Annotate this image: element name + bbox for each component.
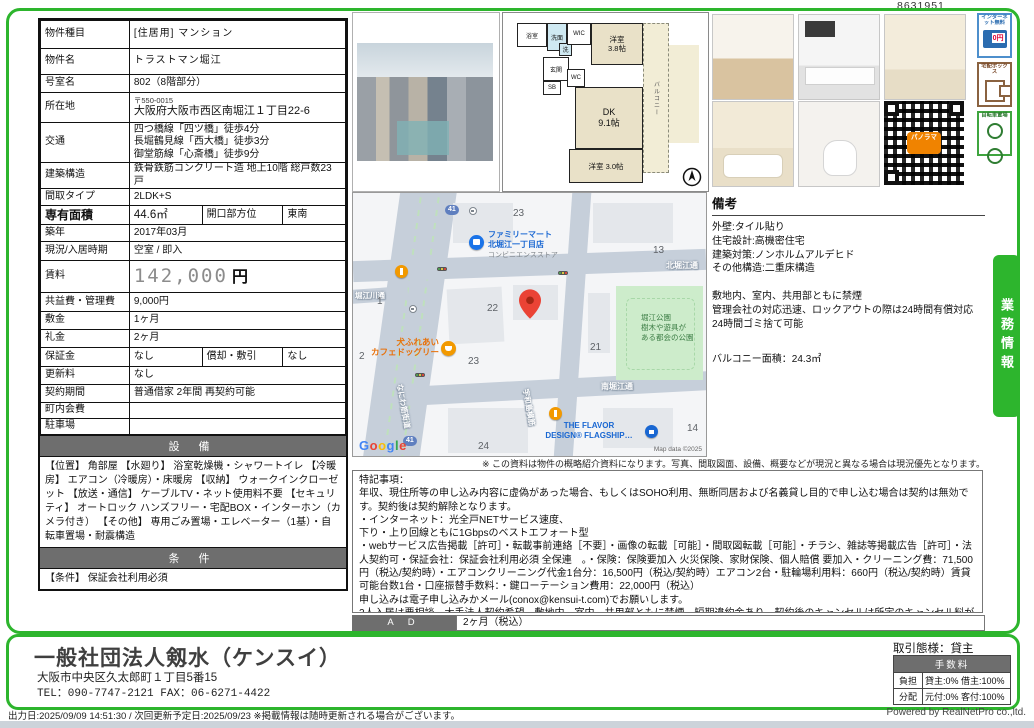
block-number: 13 [653, 245, 664, 256]
field-value [129, 419, 345, 435]
bicycle-parking-badge: 自転車置場 [977, 111, 1012, 156]
block-number: 14 [687, 423, 698, 434]
qr-finder [949, 101, 964, 116]
field-value: 2017年03月 [129, 225, 345, 242]
road-label-south: 南堀江通 [601, 381, 633, 392]
conditions-text: 【条件】 保証会社利用必須 [40, 568, 346, 589]
property-detail-panel: 物件種目[住居用] マンション 物件名トラストマン堀江 号室名802（8階部分）… [38, 18, 348, 591]
building-glass-facade [397, 121, 449, 155]
field-value: なし [283, 348, 346, 367]
field-label: 号室名 [41, 75, 130, 93]
rent-amount: 142,000 [134, 265, 228, 287]
location-map: 堀江公園 樹木や遊具が ある都会の公園 北堀江通 南堀江通 堀江川通 なにわ筋街… [352, 192, 707, 457]
building-exterior-photo [352, 12, 500, 192]
field-value: 〒550-0015大阪府大阪市西区南堀江１丁目22-6 [129, 93, 345, 123]
business-info-tab: 業務情報 [993, 255, 1020, 417]
field-label: 物件名 [41, 49, 130, 75]
toilet [823, 140, 857, 176]
traffic-light-icon [558, 271, 568, 275]
bus-stop-icon [469, 207, 477, 215]
map-pin-icon [519, 289, 541, 319]
bus-stop-icon [409, 305, 417, 313]
equipment-header: 設 備 [40, 435, 346, 456]
room-label: 玄関 [550, 65, 562, 74]
internet-free-badge: インターネット無料 0円 [977, 13, 1012, 58]
field-value: 2LDK+S [129, 189, 345, 206]
field-label: 契約期間 [41, 385, 130, 403]
delivery-box-icon [985, 80, 1005, 102]
floorplan-sb: SB [543, 81, 561, 95]
traffic-light-icon [437, 267, 447, 271]
room-label: WIC [573, 31, 585, 37]
photo-toilet [798, 101, 880, 187]
field-value: 普通借家 2年間 再契約可能 [129, 385, 345, 403]
field-value: 四つ橋線「四ツ橋」徒歩4分 長堀鶴見線「西大橋」徒歩3分 御堂筋線「心斎橋」徒歩… [129, 123, 345, 163]
field-value: 鉄骨鉄筋コンクリート造 地上10階 総戸数23戸 [129, 163, 345, 189]
cafe-label: 犬ふれあい カフェドッグリー [361, 337, 439, 357]
balcony-area: バルコニー面積：24.3㎡ [712, 350, 821, 365]
flavor-design-label: THE FLAVOR DESIGN® FLAGSHIP… [539, 421, 639, 440]
field-value: トラストマン堀江 [129, 49, 345, 75]
photo-washroom [884, 14, 966, 100]
company-tel-fax: TEL：090-7747-2121 FAX：06-6271-4422 [37, 684, 270, 700]
field-value: 東南 [283, 206, 346, 225]
badge-label: 宅配ボックス [981, 64, 1008, 75]
room-label: 洋室 3.8帖 [608, 35, 626, 53]
floorplan-wic: WIC [567, 23, 591, 45]
block-number: 2 [359, 351, 365, 362]
field-label: 開口部方位 [202, 206, 283, 225]
postal-code: 〒550-0015 [134, 97, 341, 105]
photo-living-room [712, 14, 794, 100]
field-label: 間取タイプ [41, 189, 130, 206]
field-value: 802（8階部分） [129, 75, 345, 93]
floorplan-wc: WC [567, 69, 585, 87]
field-label: 敷金 [41, 312, 130, 330]
field-label: 物件種目 [41, 21, 130, 49]
room-label: WC [571, 75, 581, 81]
familymart-icon [469, 235, 484, 250]
floorplan-balcony: バルコニー [643, 23, 669, 173]
field-label: 町内会費 [41, 403, 130, 419]
badge-label: インターネット無料 [981, 15, 1008, 26]
remarks-text: 外壁:タイル貼り 住宅設計:高機密住宅 建築対策:ノンホルムアルデヒド その他構… [712, 221, 985, 331]
kitchen-counter [805, 67, 875, 85]
block-number: 22 [487, 303, 498, 314]
block-number: 1 [377, 296, 383, 307]
qr-finder [884, 101, 899, 116]
floorplan-entrance: 玄関 [543, 57, 569, 81]
special-notes-box: 特記事項： 年収、現住所等の申し込み内容に虚偽があった場合、もしくはSOHO利用… [352, 470, 983, 613]
compass-icon [682, 167, 702, 187]
field-label: 現況/入居時期 [41, 242, 130, 261]
field-label: 共益費・管理費 [41, 293, 130, 312]
field-label: 建築構造 [41, 163, 130, 189]
sky [357, 43, 493, 77]
property-flyer-page: 8631951 物件種目[住居用] マンション 物件名トラストマン堀江 号室名8… [0, 0, 1034, 728]
floorplan-terrace [669, 45, 699, 143]
field-label: 駐車場 [41, 419, 130, 435]
field-label: 交通 [41, 123, 130, 163]
field-value: 空室 / 即入 [129, 242, 345, 261]
kitchen-hood [805, 21, 835, 37]
room-label: DK 9.1帖 [598, 107, 620, 129]
transaction-mode: 取引態様：貸主 [893, 640, 974, 656]
photo-bathroom [712, 101, 794, 187]
field-value: [住居用] マンション [129, 21, 345, 49]
field-label: 専有面積 [41, 206, 130, 225]
map-building [593, 203, 673, 243]
zero-yen-label: 0円 [991, 32, 1006, 44]
ad-value: 2ヶ月（税込） [456, 615, 985, 631]
restaurant-icon [395, 265, 408, 278]
field-value [129, 403, 345, 419]
bottom-gray-strip [0, 721, 1034, 728]
field-value: 1ヶ月 [129, 312, 345, 330]
property-table: 物件種目[住居用] マンション 物件名トラストマン堀江 号室名802（8階部分）… [40, 20, 346, 435]
google-logo: Google [359, 438, 407, 453]
traffic-light-icon [415, 373, 425, 377]
delivery-box-badge: 宅配ボックス [977, 62, 1012, 107]
field-label: 所在地 [41, 93, 130, 123]
rent-unit: 円 [232, 269, 248, 286]
field-value: 44.6㎡ [129, 206, 202, 225]
remarks-title: 備考 [712, 193, 985, 216]
room-label: 洗面 [551, 33, 563, 42]
field-label: 保証金 [41, 348, 130, 367]
panorama-icon: パノラマ [907, 132, 941, 154]
block-number: 21 [590, 342, 601, 353]
photo-kitchen [798, 14, 880, 100]
field-value: 9,000円 [129, 293, 345, 312]
fee-label: 分配 [894, 689, 923, 705]
fee-table: 手数料 負担貸主:0% 借主:100% 分配元付:0% 客付:100% [893, 655, 1011, 705]
room-label: バルコニー [652, 81, 661, 116]
lock-icon [645, 425, 658, 438]
floorplan-bathroom: 浴室 [517, 23, 547, 47]
fee-header: 手数料 [894, 656, 1011, 673]
floorplan-bedroom1: 洋室 3.8帖 [591, 23, 643, 65]
powered-by: Powered by RealNetPro co.,ltd. [760, 707, 1026, 718]
badge-label: 自転車置場 [981, 113, 1008, 119]
map-building [447, 287, 505, 345]
field-label: 賃料 [41, 261, 130, 293]
field-value: なし [129, 348, 202, 367]
block-number: 23 [513, 208, 524, 219]
ad-row: A D 2ヶ月（税込） [352, 615, 985, 631]
restaurant-icon [549, 407, 562, 420]
route-shield: 41 [445, 205, 459, 215]
qr-code: パノラマ [884, 101, 964, 185]
company-name: 一般社団法人剱水（ケンスイ） [34, 642, 341, 672]
park-label: 堀江公園 樹木や遊具が ある都会の公園 [641, 313, 694, 342]
room-label: 洗 [562, 45, 568, 54]
familymart-label: ファミリーマート 北堀江一丁目店 [488, 230, 552, 249]
field-label: 築年 [41, 225, 130, 242]
remarks-panel: 備考 外壁:タイル貼り 住宅設計:高機密住宅 建築対策:ノンホルムアルデヒド そ… [712, 193, 985, 455]
equipment-text: 【位置】 角部屋 【水廻り】 浴室乾燥機・シャワートイレ 【冷暖房】 エアコン（… [40, 456, 346, 547]
output-date-note: 出力日:2025/09/09 14:51:30 / 次回更新予定日:2025/0… [8, 708, 460, 722]
fee-label: 負担 [894, 673, 923, 689]
familymart-type: コンビニエンスストア [488, 250, 558, 260]
bicycle-icon [987, 123, 1003, 139]
room-label: SB [548, 85, 556, 91]
disclaimer-text: ※ この資料は物件の概略紹介資料になります。写真、間取図面、設備、概要などが現況… [352, 457, 985, 470]
fee-value: 元付:0% 客付:100% [923, 689, 1011, 705]
ad-label: A D [352, 615, 456, 631]
block-number: 24 [478, 441, 489, 452]
company-address: 大阪市中央区久太郎町１丁目5番15 [37, 669, 217, 685]
block-number: 23 [468, 356, 479, 367]
cafe-icon [441, 341, 456, 356]
field-value: なし [129, 367, 345, 385]
room-label: 浴室 [526, 31, 538, 40]
field-label: 礼金 [41, 330, 130, 348]
field-label: 償却・敷引 [202, 348, 283, 367]
address: 大阪府大阪市西区南堀江１丁目22-6 [134, 105, 341, 119]
field-value: 2ヶ月 [129, 330, 345, 348]
map-attribution: Map data ©2025 [654, 446, 702, 453]
floorplan-dk: DK 9.1帖 [575, 87, 643, 149]
panorama-label: パノラマ [911, 134, 937, 141]
conditions-header: 条 件 [40, 547, 346, 568]
floorplan: 浴室 洗面 洗 WIC 洋室 3.8帖 玄関 SB WC DK 9.1帖 洋室 … [502, 12, 709, 192]
internet-icon: 0円 [983, 30, 1007, 48]
bathtub [723, 154, 783, 178]
road-label-north: 北堀江通 [666, 260, 698, 271]
floorplan-bedroom2: 洋室 3.0帖 [569, 149, 643, 183]
bicycle-icon [987, 148, 1003, 164]
fee-value: 貸主:0% 借主:100% [923, 673, 1011, 689]
field-label: 更新料 [41, 367, 130, 385]
qr-finder [884, 170, 899, 185]
rent-value-cell: 142,000円 [129, 261, 345, 293]
room-label: 洋室 3.0帖 [588, 162, 623, 171]
